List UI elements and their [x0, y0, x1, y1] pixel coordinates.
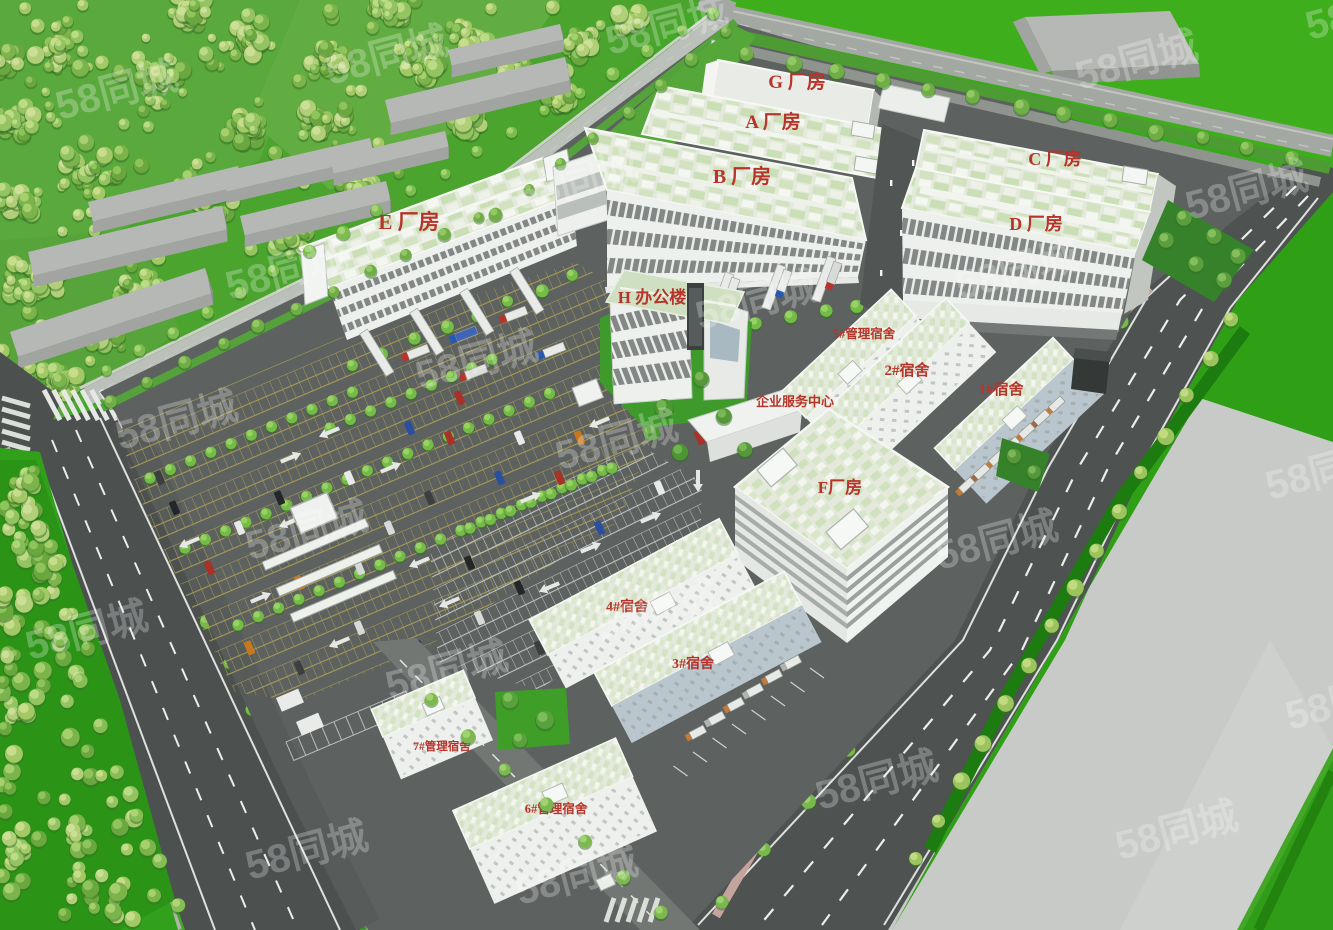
svg-text:企业服务中心: 企业服务中心 — [755, 394, 834, 409]
svg-text:A 厂房: A 厂房 — [745, 110, 800, 133]
svg-text:D 厂房: D 厂房 — [1009, 213, 1063, 234]
svg-text:C 厂房: C 厂房 — [1028, 148, 1082, 169]
svg-text:E 厂房: E 厂房 — [378, 210, 439, 234]
svg-text:2#宿舍: 2#宿舍 — [884, 361, 930, 379]
svg-text:1#宿舍: 1#宿舍 — [978, 380, 1024, 398]
svg-text:B 厂房: B 厂房 — [713, 164, 771, 188]
svg-text:6#管理宿舍: 6#管理宿舍 — [525, 801, 588, 816]
svg-text:F厂房: F厂房 — [818, 477, 862, 497]
svg-text:H 办公楼: H 办公楼 — [618, 287, 686, 307]
svg-text:5#管理宿舍: 5#管理宿舍 — [833, 326, 896, 341]
svg-text:3#宿舍: 3#宿舍 — [672, 655, 715, 672]
